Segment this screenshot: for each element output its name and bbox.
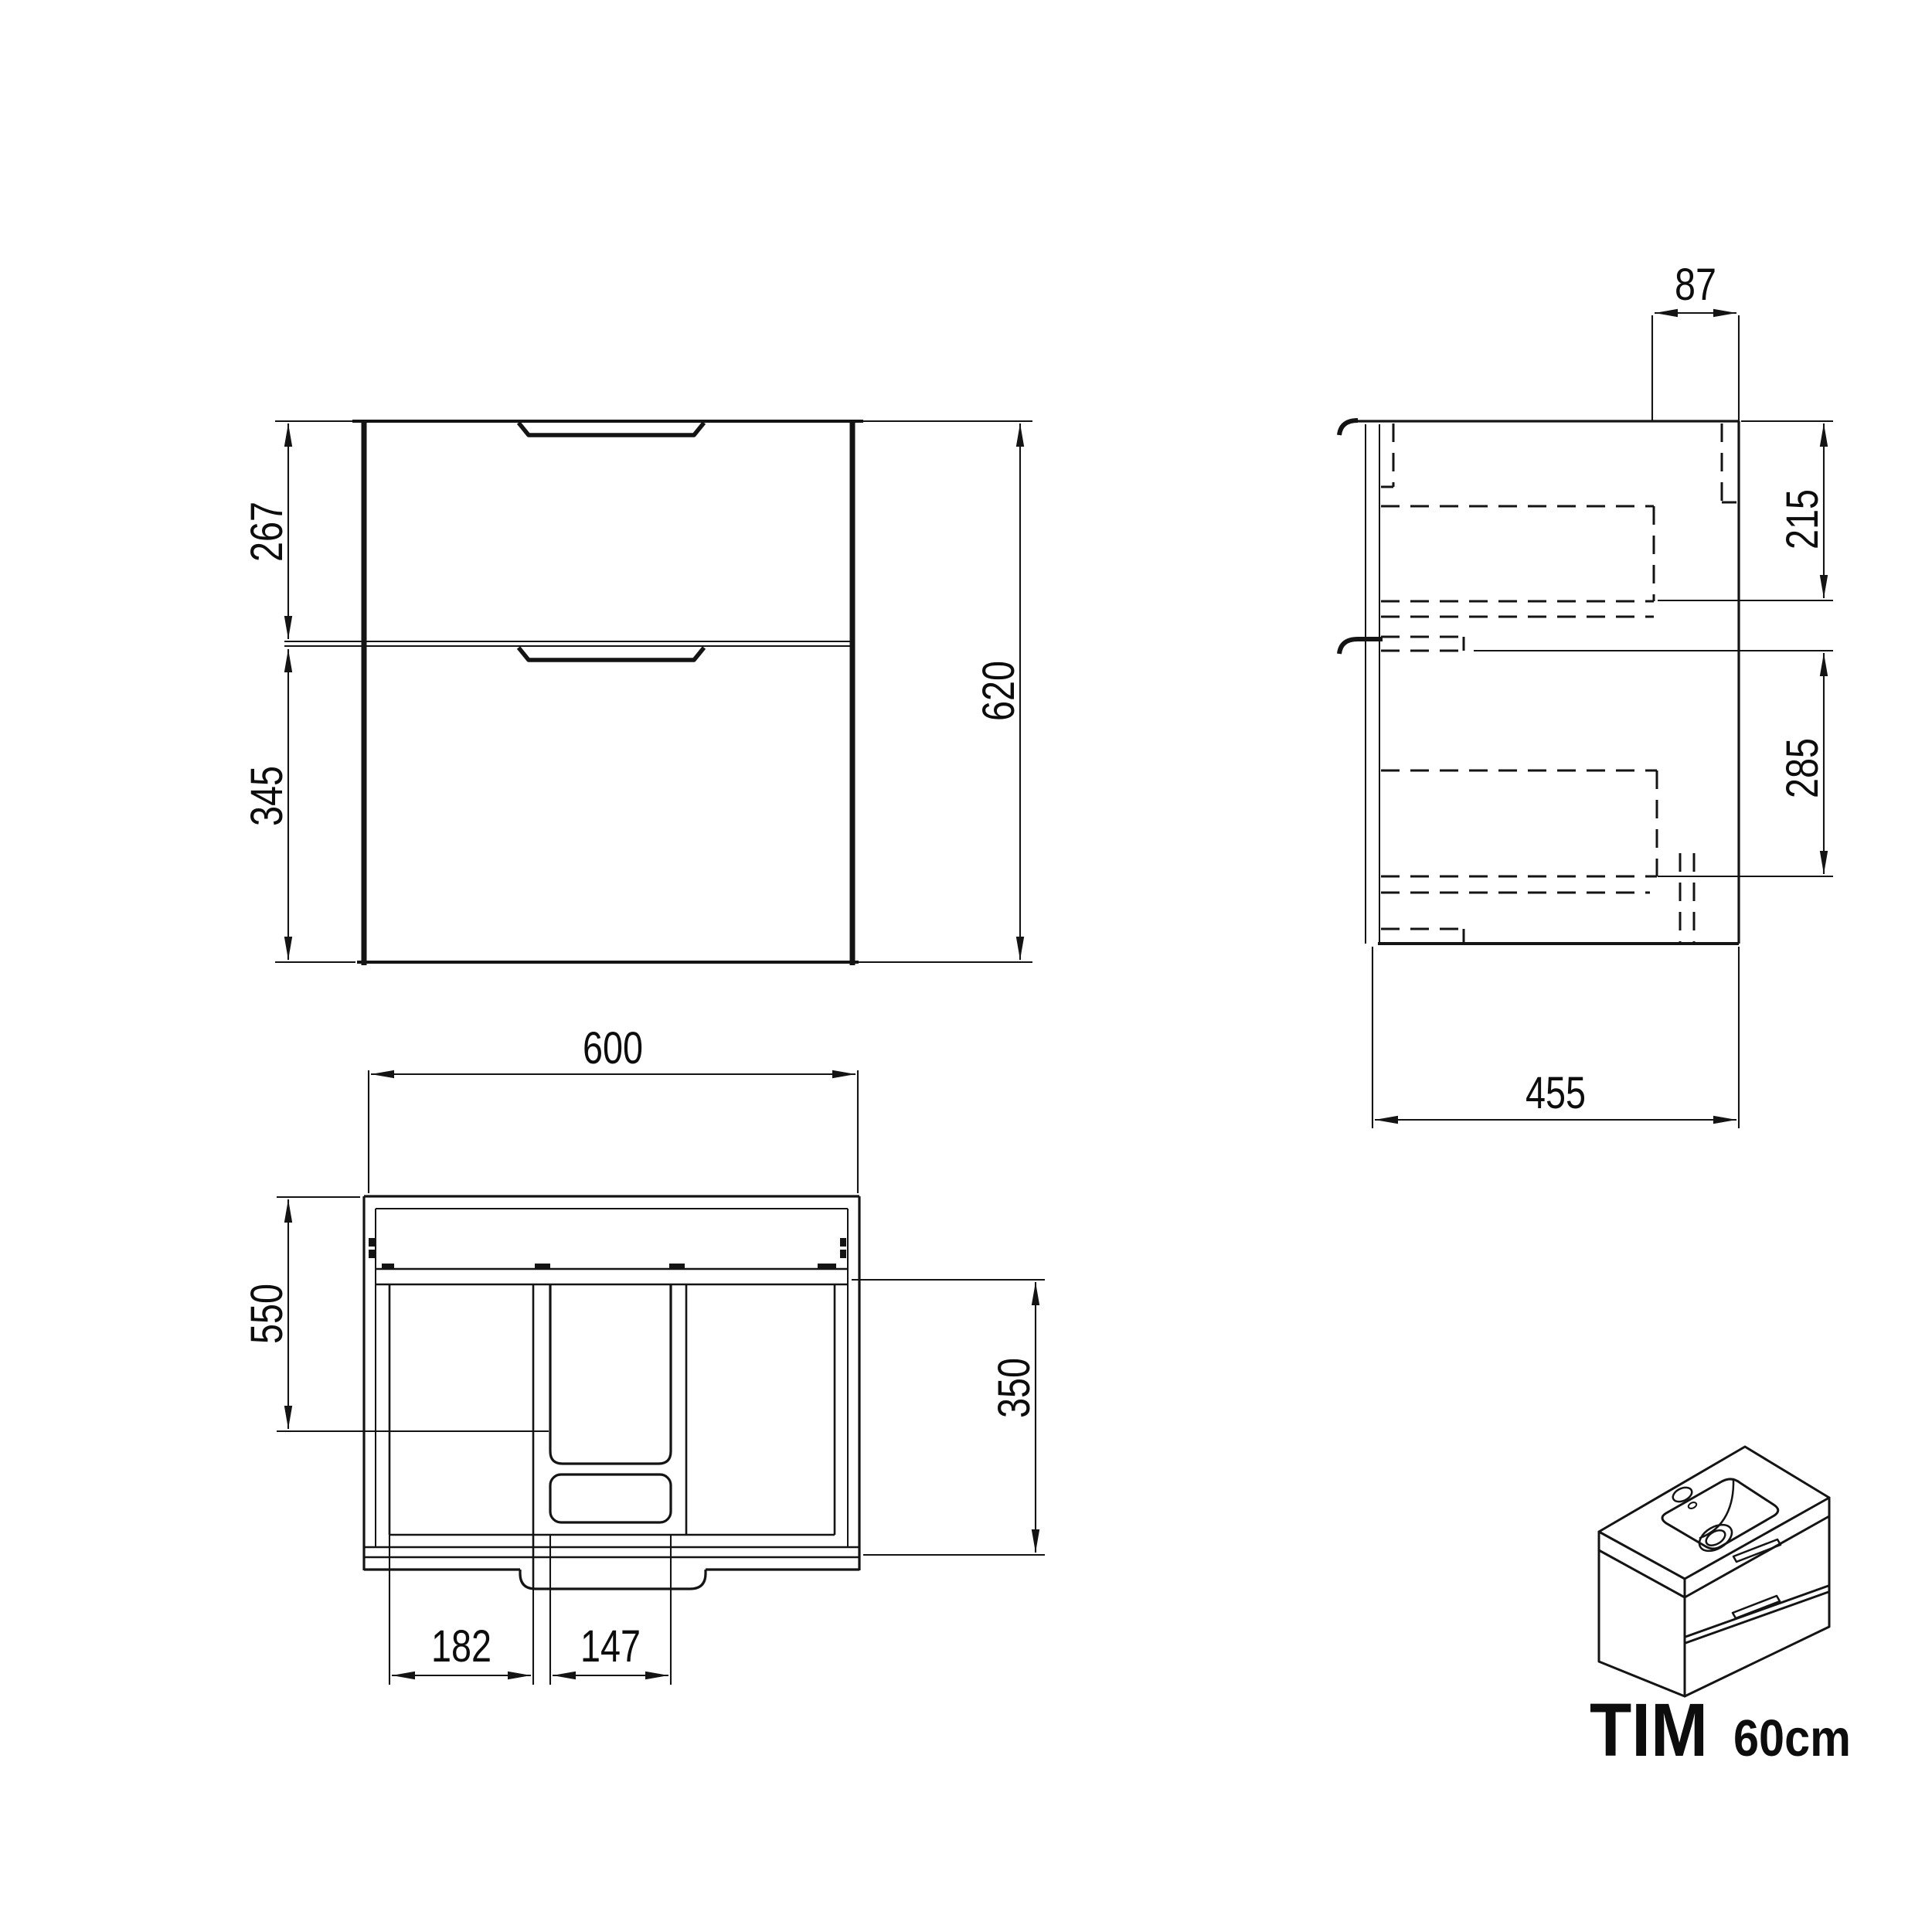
- rail-tab-1: [382, 1264, 394, 1269]
- dim-label-147: 147: [580, 1621, 641, 1672]
- dim-label-345: 345: [242, 766, 292, 826]
- slide-clip-left-b: [369, 1250, 375, 1258]
- dim-label-350: 350: [989, 1358, 1039, 1418]
- side-view: 87 215 285 455: [1339, 260, 1833, 1128]
- drain-outer: [1695, 1519, 1736, 1556]
- dim-plan-width: 600: [369, 1023, 858, 1193]
- perspective-drawer-divider: [1685, 1586, 1828, 1643]
- slide-clip-right-b: [840, 1250, 846, 1258]
- dim-side-upper: 215: [1658, 421, 1833, 600]
- dim-plan-drawer-depth: 350: [852, 1280, 1045, 1555]
- slide-clip-right-a: [840, 1238, 846, 1247]
- wall-hook-middle: [1339, 639, 1383, 654]
- dim-plan-depth: 550: [242, 1197, 549, 1431]
- plan-side-panels-inner: [376, 1209, 848, 1547]
- dim-front-upper: 267: [242, 421, 354, 639]
- hidden-upper-drawer-outline: [1381, 423, 1736, 617]
- dim-label-182: 182: [431, 1621, 492, 1672]
- rail-tab-4: [818, 1264, 836, 1269]
- countertop-top-face: [1599, 1447, 1829, 1579]
- dim-label-215: 215: [1777, 489, 1828, 549]
- bottom-drawer-handle-recess: [519, 648, 704, 660]
- dim-label-600: 600: [583, 1023, 643, 1073]
- drawer-back-rail: [376, 1269, 848, 1284]
- perspective-view: [1599, 1447, 1829, 1696]
- dim-label-267: 267: [242, 502, 292, 562]
- hidden-middle-bracket: [1381, 637, 1464, 651]
- dim-label-550: 550: [242, 1284, 292, 1344]
- dim-label-620: 620: [974, 661, 1024, 721]
- siphon-channel-walls: [533, 1284, 686, 1590]
- slide-clip-left-a: [369, 1238, 375, 1247]
- technical-drawing-canvas: 267 345 620 87 215: [0, 0, 1932, 1932]
- wall-hook-top: [1339, 420, 1358, 435]
- hidden-lower-drawer-outline: [1381, 770, 1657, 942]
- product-model-title: TIM: [1590, 1688, 1708, 1772]
- top-drawer-handle-recess: [519, 423, 704, 435]
- plan-front-panel: [364, 1547, 859, 1557]
- dim-label-87: 87: [1675, 260, 1716, 310]
- extension-lines: [277, 1197, 549, 1431]
- dim-label-285: 285: [1777, 738, 1828, 798]
- overflow-hole: [1688, 1502, 1698, 1510]
- drawer-divider: [284, 641, 850, 646]
- dim-side-depth: 455: [1372, 947, 1739, 1128]
- perspective-top-handle: [1733, 1539, 1781, 1562]
- plan-carcass-outline: [364, 1196, 859, 1570]
- side-back-panel: [1366, 424, 1379, 944]
- dim-label-455: 455: [1526, 1068, 1586, 1118]
- rail-tab-3: [669, 1264, 685, 1269]
- dim-front-total: 620: [859, 421, 1032, 962]
- front-view: 267 345 620: [242, 421, 1032, 965]
- product-size-label: 60cm: [1733, 1709, 1851, 1767]
- extension-lines: [1652, 315, 1739, 421]
- top-view: 600 550 350 182 147: [242, 1023, 1045, 1685]
- plan-handle-recess-bulge: [520, 1570, 706, 1589]
- siphon-recess-box: [550, 1475, 671, 1522]
- siphon-recess-cutout: [550, 1284, 671, 1464]
- title-block: TIM 60cm: [1590, 1688, 1851, 1772]
- perspective-bottom-handle: [1733, 1596, 1780, 1618]
- hidden-siphon-cutout: [1680, 853, 1694, 942]
- dim-side-top: 87: [1652, 260, 1739, 421]
- extension-lines: [369, 1070, 858, 1193]
- basin-bowl-curve: [1700, 1479, 1733, 1538]
- rail-tab-2: [535, 1264, 550, 1269]
- spec-sheet-page: 267 345 620 87 215: [0, 0, 1932, 1932]
- drawer-box-outline: [389, 1284, 835, 1535]
- dim-front-lower: 345: [242, 649, 355, 962]
- dim-side-lower: 285: [1474, 651, 1833, 876]
